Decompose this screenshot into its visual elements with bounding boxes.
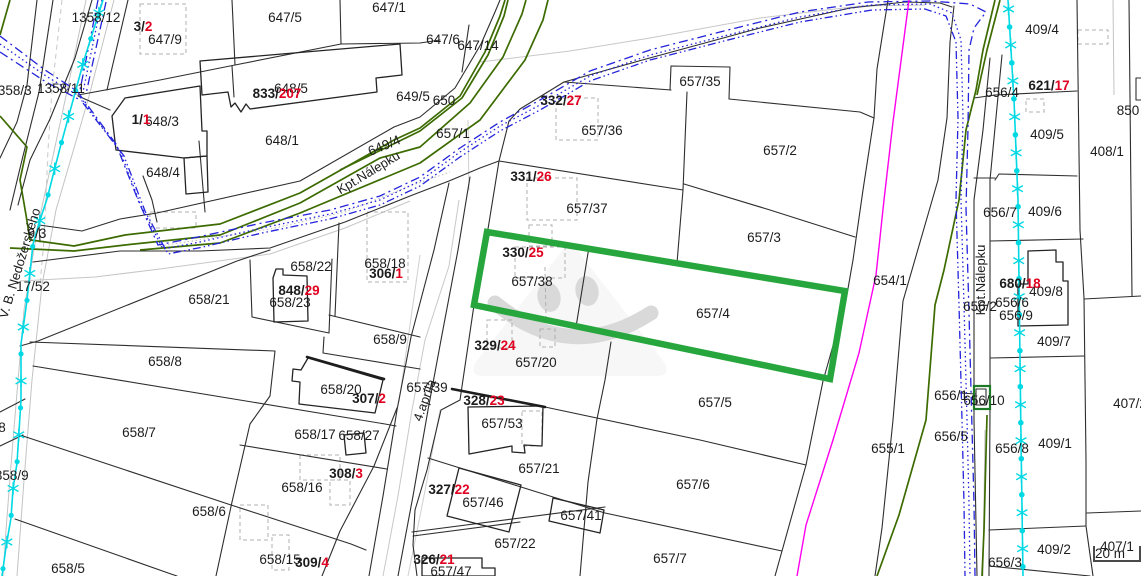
svg-text:657/53: 657/53	[481, 416, 522, 431]
svg-text:328/23: 328/23	[463, 393, 505, 408]
svg-text:680/18: 680/18	[999, 276, 1041, 291]
svg-text:658/21: 658/21	[188, 292, 229, 307]
svg-text:656/10: 656/10	[963, 393, 1004, 408]
svg-text:656/8: 656/8	[995, 441, 1029, 456]
svg-text:1/1: 1/1	[132, 112, 151, 127]
svg-text:656/1: 656/1	[934, 388, 968, 403]
svg-text:657/46: 657/46	[462, 495, 503, 510]
svg-text:407/2: 407/2	[1113, 396, 1141, 411]
svg-text:329/24: 329/24	[474, 338, 516, 353]
svg-text:656/9: 656/9	[999, 308, 1033, 323]
svg-text:649/5: 649/5	[396, 89, 430, 104]
svg-text:658/6: 658/6	[192, 504, 226, 519]
svg-text:656/3: 656/3	[988, 555, 1022, 570]
svg-text:657/4: 657/4	[696, 306, 730, 321]
svg-text:647/6: 647/6	[426, 32, 460, 47]
svg-text:848/29: 848/29	[278, 283, 319, 298]
svg-text:1358/12: 1358/12	[72, 10, 121, 25]
svg-text:833/207: 833/207	[253, 86, 302, 101]
svg-text:647/9: 647/9	[148, 32, 182, 47]
svg-text:658/22: 658/22	[290, 259, 331, 274]
svg-text:1358/9: 1358/9	[0, 468, 29, 483]
svg-text:20 m: 20 m	[1095, 546, 1125, 561]
svg-text:658/7: 658/7	[122, 425, 156, 440]
svg-text:621/17: 621/17	[1028, 78, 1069, 93]
svg-text:657/7: 657/7	[653, 551, 687, 566]
svg-text:326/21: 326/21	[413, 552, 455, 567]
svg-text:332/27: 332/27	[540, 93, 581, 108]
svg-text:650: 650	[433, 93, 456, 108]
svg-text:657/36: 657/36	[581, 123, 622, 138]
svg-text:657/2: 657/2	[763, 143, 797, 158]
svg-text:657/22: 657/22	[494, 536, 535, 551]
svg-text:648/4: 648/4	[146, 165, 180, 180]
svg-text:657/38: 657/38	[511, 274, 552, 289]
svg-text:654/1: 654/1	[873, 273, 907, 288]
svg-text:658/9: 658/9	[373, 332, 407, 347]
svg-text:331/26: 331/26	[510, 169, 552, 184]
svg-text:327/22: 327/22	[428, 482, 469, 497]
svg-text:657/3: 657/3	[747, 230, 781, 245]
svg-text:657/37: 657/37	[566, 201, 607, 216]
svg-text:1358/3: 1358/3	[0, 83, 32, 98]
svg-text:657/1: 657/1	[436, 126, 470, 141]
svg-text:647/5: 647/5	[268, 10, 302, 25]
svg-text:658/27: 658/27	[338, 428, 379, 443]
svg-text:658/17: 658/17	[294, 427, 335, 442]
svg-text:657/5: 657/5	[698, 395, 732, 410]
svg-text:657/21: 657/21	[518, 461, 559, 476]
svg-text:409/6: 409/6	[1028, 204, 1062, 219]
svg-text:647/14: 647/14	[457, 38, 499, 53]
svg-text:648/1: 648/1	[265, 133, 299, 148]
svg-text:656/4: 656/4	[985, 85, 1019, 100]
svg-text:330/25: 330/25	[502, 245, 544, 260]
svg-text:408/1: 408/1	[1090, 144, 1124, 159]
svg-text:309/4: 309/4	[295, 555, 329, 570]
svg-text:647/1: 647/1	[372, 0, 406, 15]
svg-text:655/1: 655/1	[871, 441, 905, 456]
svg-text:657/6: 657/6	[676, 477, 710, 492]
svg-text:306/1: 306/1	[369, 266, 403, 281]
svg-text:657/35: 657/35	[679, 74, 720, 89]
svg-text:658/8: 658/8	[148, 354, 182, 369]
svg-text:656/7: 656/7	[983, 205, 1017, 220]
svg-text:409/5: 409/5	[1030, 127, 1064, 142]
svg-text:657/20: 657/20	[515, 355, 556, 370]
svg-text:409/4: 409/4	[1025, 22, 1059, 37]
svg-text:657/41: 657/41	[560, 508, 601, 523]
svg-text:658/5: 658/5	[51, 561, 85, 576]
svg-text:8: 8	[0, 420, 6, 435]
svg-text:656/5: 656/5	[934, 429, 968, 444]
svg-text:409/2: 409/2	[1037, 542, 1071, 557]
svg-text:409/7: 409/7	[1037, 334, 1071, 349]
svg-text:3/2: 3/2	[134, 19, 153, 34]
svg-text:850: 850	[1117, 103, 1140, 118]
svg-text:307/2: 307/2	[352, 391, 386, 406]
svg-text:1358/11: 1358/11	[37, 81, 85, 96]
svg-text:658/16: 658/16	[281, 480, 322, 495]
svg-text:409/1: 409/1	[1038, 436, 1072, 451]
svg-text:308/3: 308/3	[329, 466, 363, 481]
svg-text:Kpt.Nálepku: Kpt.Nálepku	[973, 245, 988, 316]
